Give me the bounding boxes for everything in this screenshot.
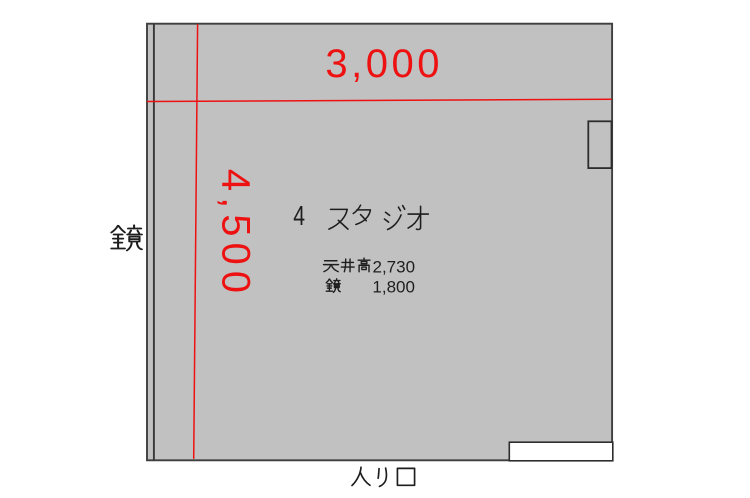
svg-text:4,500: 4,500 [213, 169, 257, 299]
svg-text:4: 4 [293, 200, 305, 231]
svg-text:1,800: 1,800 [372, 278, 415, 297]
svg-text:3,000: 3,000 [325, 42, 443, 86]
svg-text:2,730: 2,730 [373, 257, 416, 276]
